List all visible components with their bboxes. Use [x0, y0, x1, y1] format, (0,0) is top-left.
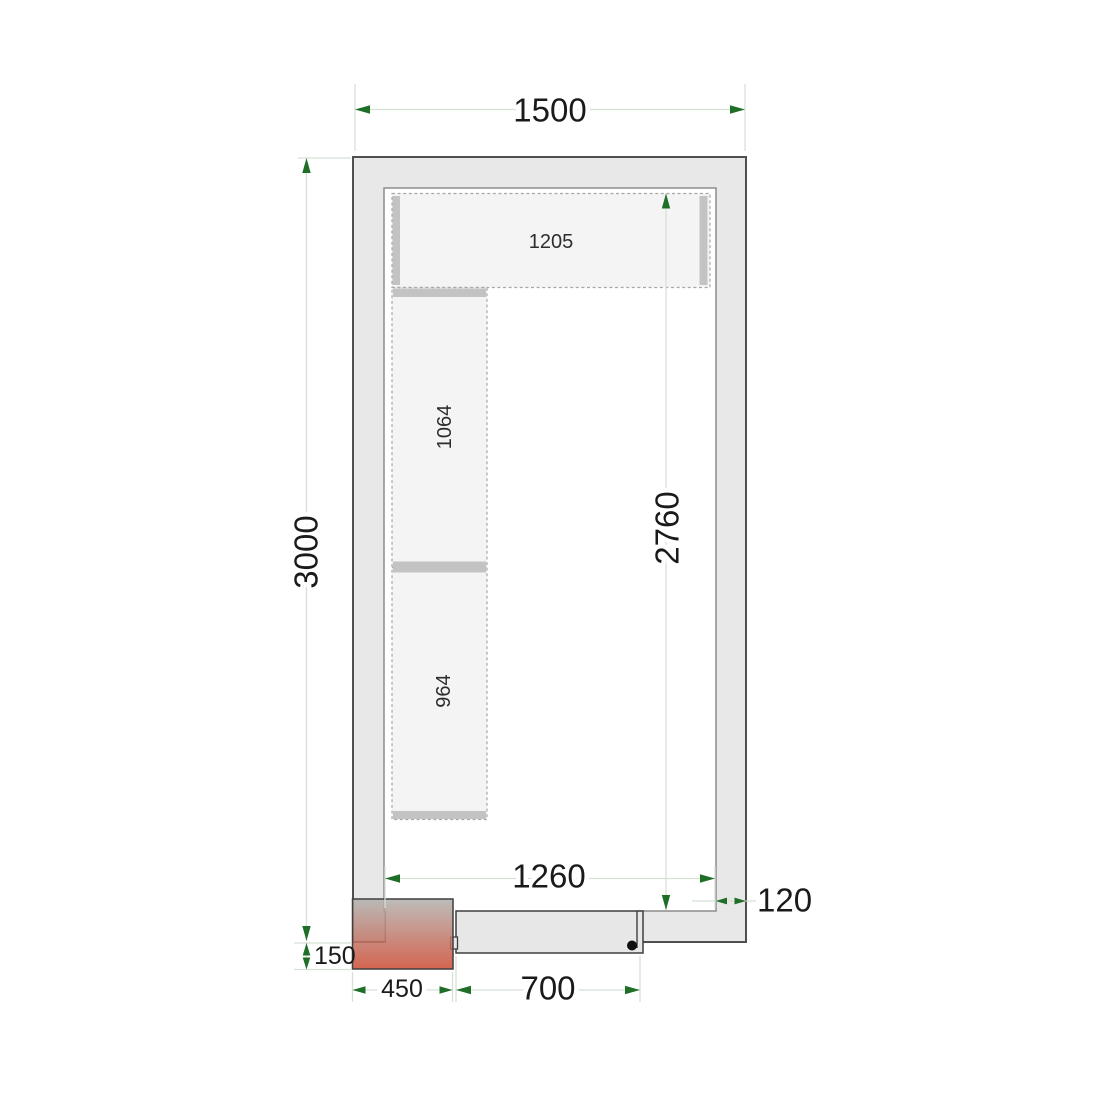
arrow-right	[625, 986, 640, 994]
door-panel	[456, 911, 643, 953]
shelf-top-left-edge	[393, 196, 401, 285]
floor-plan-canvas: 1205 1064 964	[0, 0, 1100, 1100]
arrow-right	[730, 105, 745, 113]
shelf-top-right-edge	[700, 196, 708, 285]
dim-inner-width: 1260	[512, 858, 585, 895]
dim-unit-width: 450	[381, 975, 423, 1003]
dim-unit-protrusion: 150	[314, 942, 356, 970]
arrow-down	[302, 926, 310, 941]
door-assembly	[451, 911, 644, 953]
shelf-top-label: 1205	[529, 231, 574, 253]
arrow-left	[456, 986, 471, 994]
arrow-right	[440, 986, 453, 994]
arrow-up	[303, 943, 311, 956]
dim-outer-width: 1500	[513, 92, 586, 129]
door-handle-dot	[627, 941, 637, 951]
shelf-divider-edge	[393, 562, 486, 573]
floor-plan-drawing: 1205 1064 964	[0, 0, 1100, 1100]
shelf-lower-bottom-edge	[393, 811, 486, 819]
dim-door-width: 700	[520, 970, 575, 1007]
shelf-upper-top-edge	[393, 289, 486, 298]
dim-outer-depth: 3000	[288, 515, 325, 588]
condensing-unit	[353, 899, 454, 969]
arrow-up	[302, 158, 310, 173]
dim-wall-thickness: 120	[757, 882, 812, 919]
shelf-left-upper-label: 1064	[434, 405, 456, 450]
arrow-left	[353, 986, 366, 994]
arrow-down	[303, 958, 311, 970]
arrow-left	[355, 105, 370, 113]
dim-inner-depth: 2760	[649, 491, 686, 564]
shelf-left-lower-label: 964	[433, 674, 455, 707]
